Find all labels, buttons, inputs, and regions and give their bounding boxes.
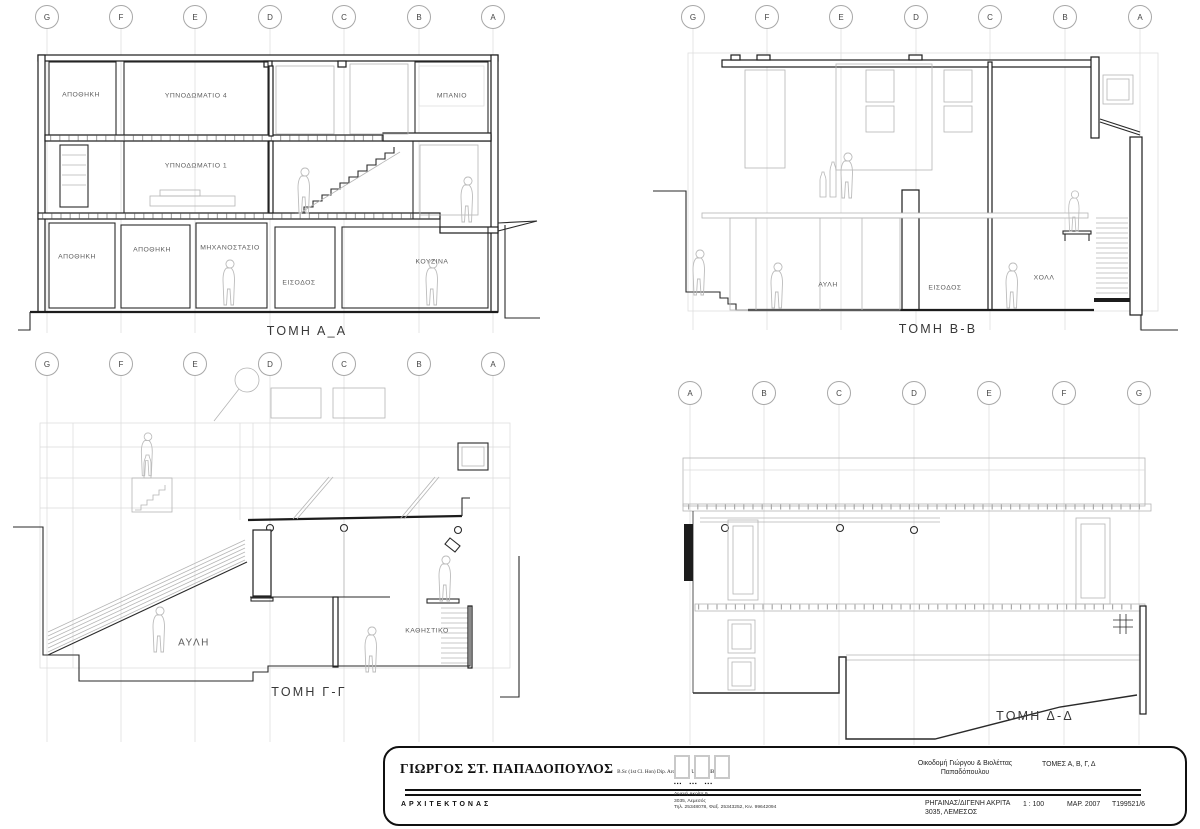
grid-bubble: D bbox=[904, 5, 928, 29]
hall-stair bbox=[1063, 218, 1130, 302]
project-name-line2: Παπαδόπουλου bbox=[890, 768, 1040, 777]
room-label: ΑΥΛΗ bbox=[178, 638, 210, 649]
human-figures bbox=[223, 168, 473, 305]
grid-letter: F bbox=[119, 13, 124, 22]
drawing-sheet: G F E D C B A G F E D C B A G F E D C B … bbox=[0, 0, 1200, 829]
grid-bubble: A bbox=[1128, 5, 1152, 29]
room-label: ΥΠΝΟΔΩΜΑΤΙΟ 4 bbox=[165, 93, 227, 100]
building-envelope bbox=[683, 458, 1151, 693]
grid-letter: C bbox=[341, 360, 347, 369]
room-label: ΜΗΧΑΝΟΣΤΑΣΙΟ bbox=[200, 245, 260, 252]
grid-letter: G bbox=[690, 13, 696, 22]
grid-letter: G bbox=[44, 13, 50, 22]
grid-lines bbox=[47, 376, 493, 742]
grid-bubble: A bbox=[481, 5, 505, 29]
grid-letter: A bbox=[490, 360, 495, 369]
grid-bubble: D bbox=[902, 381, 926, 405]
grid-bubble: E bbox=[829, 5, 853, 29]
site-address: ΡΗΓΑΙΝΑΣ/ΔΙΓΕΝΗ ΑΚΡΙΤΑ 3035, ΛΕΜΕΣΟΣ bbox=[925, 799, 1010, 818]
grid-bubble: C bbox=[978, 5, 1002, 29]
grid-bubble: B bbox=[407, 5, 431, 29]
grid-bubble: B bbox=[752, 381, 776, 405]
grid-letter: G bbox=[44, 360, 50, 369]
grid-letter: C bbox=[341, 13, 347, 22]
grid-bubble: G bbox=[1127, 381, 1151, 405]
grid-bubble: D bbox=[258, 5, 282, 29]
site-address-line2: 3035, ΛΕΜΕΣΟΣ bbox=[925, 808, 1010, 817]
grid-bubble: G bbox=[681, 5, 705, 29]
grid-letter: E bbox=[192, 360, 197, 369]
title-block: ΓΙΩΡΓΟΣ ΣΤ. ΠΑΠΑΔΟΠΟΥΛΟΣ B.Sc (1st Cl. H… bbox=[383, 746, 1187, 826]
room-label: ΜΠΑΝΙΟ bbox=[437, 93, 467, 100]
section-dd-linework bbox=[640, 370, 1200, 770]
room-label: ΥΠΝΟΔΩΜΑΤΙΟ 1 bbox=[165, 163, 227, 170]
site-address-line1: ΡΗΓΑΙΝΑΣ/ΔΙΓΕΝΗ ΑΚΡΙΤΑ bbox=[925, 799, 1010, 808]
room-label: ΕΙΣΟΔΟΣ bbox=[282, 280, 315, 287]
grid-bubble: F bbox=[755, 5, 779, 29]
grid-lines bbox=[47, 28, 493, 333]
grid-letter: D bbox=[911, 389, 917, 398]
grid-letter: A bbox=[1137, 13, 1142, 22]
room-label: ΕΙΣΟΔΟΣ bbox=[928, 285, 961, 292]
ground-floor-rooms bbox=[49, 223, 488, 308]
drawing-date: ΜΑΡ. 2007 bbox=[1067, 801, 1100, 808]
room-label: ΑΥΛΗ bbox=[818, 282, 838, 289]
drawing-scale: 1 : 100 bbox=[1023, 801, 1044, 808]
section-title-aa: ΤΟΜΗ Α_Α bbox=[267, 324, 348, 338]
grid-bubble: F bbox=[109, 5, 133, 29]
grid-bubble: F bbox=[1052, 381, 1076, 405]
grid-bubble: E bbox=[977, 381, 1001, 405]
grid-letter: A bbox=[687, 389, 692, 398]
grid-bubble: D bbox=[258, 352, 282, 376]
ground-profile bbox=[13, 527, 519, 697]
grid-letter: B bbox=[416, 13, 421, 22]
human-figures bbox=[693, 153, 1079, 308]
grid-letter: F bbox=[119, 360, 124, 369]
grid-letter: C bbox=[836, 389, 842, 398]
roof-objects bbox=[214, 368, 385, 421]
middle-floor bbox=[60, 141, 478, 219]
grid-bubble: A bbox=[481, 352, 505, 376]
grid-letter: D bbox=[913, 13, 919, 22]
grid-letter: F bbox=[1062, 389, 1067, 398]
grid-bubble: A bbox=[678, 381, 702, 405]
human-figures bbox=[141, 433, 450, 672]
grid-bubble: C bbox=[332, 352, 356, 376]
grid-lines bbox=[690, 404, 1139, 745]
project-name-line1: Οικοδομή Γιώργου & Βιολέττας bbox=[890, 759, 1040, 768]
room-label: ΑΠΟΘΗΚΗ bbox=[58, 254, 96, 261]
grid-bubble: G bbox=[35, 352, 59, 376]
grid-letter: F bbox=[765, 13, 770, 22]
upper-floor-rooms bbox=[49, 62, 488, 136]
office-logo-icon: ▪▪▪▪▪▪▪▪▪ bbox=[674, 755, 730, 787]
grid-letter: A bbox=[490, 13, 495, 22]
office-address-line1: Διγενή Ακρίτα 9 bbox=[674, 792, 776, 799]
ground-profile bbox=[693, 606, 1146, 739]
section-aa-linework bbox=[0, 0, 560, 345]
grid-letter: E bbox=[838, 13, 843, 22]
stair bbox=[295, 147, 394, 213]
architect-name-text: ΓΙΩΡΓΟΣ ΣΤ. ΠΑΠΑΔΟΠΟΥΛΟΣ bbox=[400, 761, 613, 776]
office-address: Διγενή Ακρίτα 9 3035, Λεμεσός Τηλ. 25348… bbox=[674, 792, 776, 812]
room-label: ΧΟΛΛ bbox=[1034, 275, 1055, 282]
grid-bubble: C bbox=[827, 381, 851, 405]
grid-letter: E bbox=[192, 13, 197, 22]
office-contact: Τηλ. 25348078, Φαξ. 25343252, Κιν. 99642… bbox=[674, 805, 776, 812]
grid-bubble: G bbox=[35, 5, 59, 29]
profession-label: ΑΡΧΙΤΕΚΤΟΝΑΣ bbox=[401, 801, 491, 808]
grid-letter: G bbox=[1136, 389, 1142, 398]
facade-details bbox=[702, 64, 1140, 310]
grid-letter: B bbox=[416, 360, 421, 369]
grid-letter: D bbox=[267, 360, 273, 369]
grid-bubble: F bbox=[109, 352, 133, 376]
room-label: ΑΠΟΘΗΚΗ bbox=[62, 92, 100, 99]
section-title-gg: ΤΟΜΗ Γ-Γ bbox=[271, 685, 347, 699]
grid-letter: B bbox=[761, 389, 766, 398]
section-bb-linework bbox=[640, 0, 1200, 350]
grid-lines bbox=[693, 28, 1140, 330]
project-name: Οικοδομή Γιώργου & Βιολέττας Παπαδόπουλο… bbox=[890, 759, 1040, 778]
grid-bubble: C bbox=[332, 5, 356, 29]
section-title-dd: ΤΟΜΗ Δ-Δ bbox=[996, 709, 1074, 723]
site-boundary bbox=[688, 53, 1158, 311]
grid-bubble: B bbox=[1053, 5, 1077, 29]
room-label: ΚΟΥΖΙΝΑ bbox=[416, 259, 449, 266]
building-outline bbox=[653, 55, 1178, 330]
room-label: ΚΑΘΗΣΤΙΚΟ bbox=[405, 628, 448, 635]
stair-railing bbox=[48, 455, 247, 655]
grid-letter: B bbox=[1062, 13, 1067, 22]
interior-details bbox=[684, 518, 1133, 690]
grid-letter: D bbox=[267, 13, 273, 22]
architect-name: ΓΙΩΡΓΟΣ ΣΤ. ΠΑΠΑΔΟΠΟΥΛΟΣ B.Sc (1st Cl. H… bbox=[400, 761, 718, 777]
section-title-bb: ΤΟΜΗ Β-Β bbox=[899, 322, 977, 336]
room-label: ΑΠΟΘΗΚΗ bbox=[133, 247, 171, 254]
grid-bubble: E bbox=[183, 352, 207, 376]
drawing-title: ΤΟΜΕΣ Α, Β, Γ, Δ bbox=[1042, 761, 1096, 768]
grid-bubble: E bbox=[183, 5, 207, 29]
grid-letter: E bbox=[986, 389, 991, 398]
grid-bubble: B bbox=[407, 352, 431, 376]
canopy bbox=[248, 443, 488, 601]
drawing-number: T199521/6 bbox=[1112, 801, 1145, 808]
grid-letter: C bbox=[987, 13, 993, 22]
